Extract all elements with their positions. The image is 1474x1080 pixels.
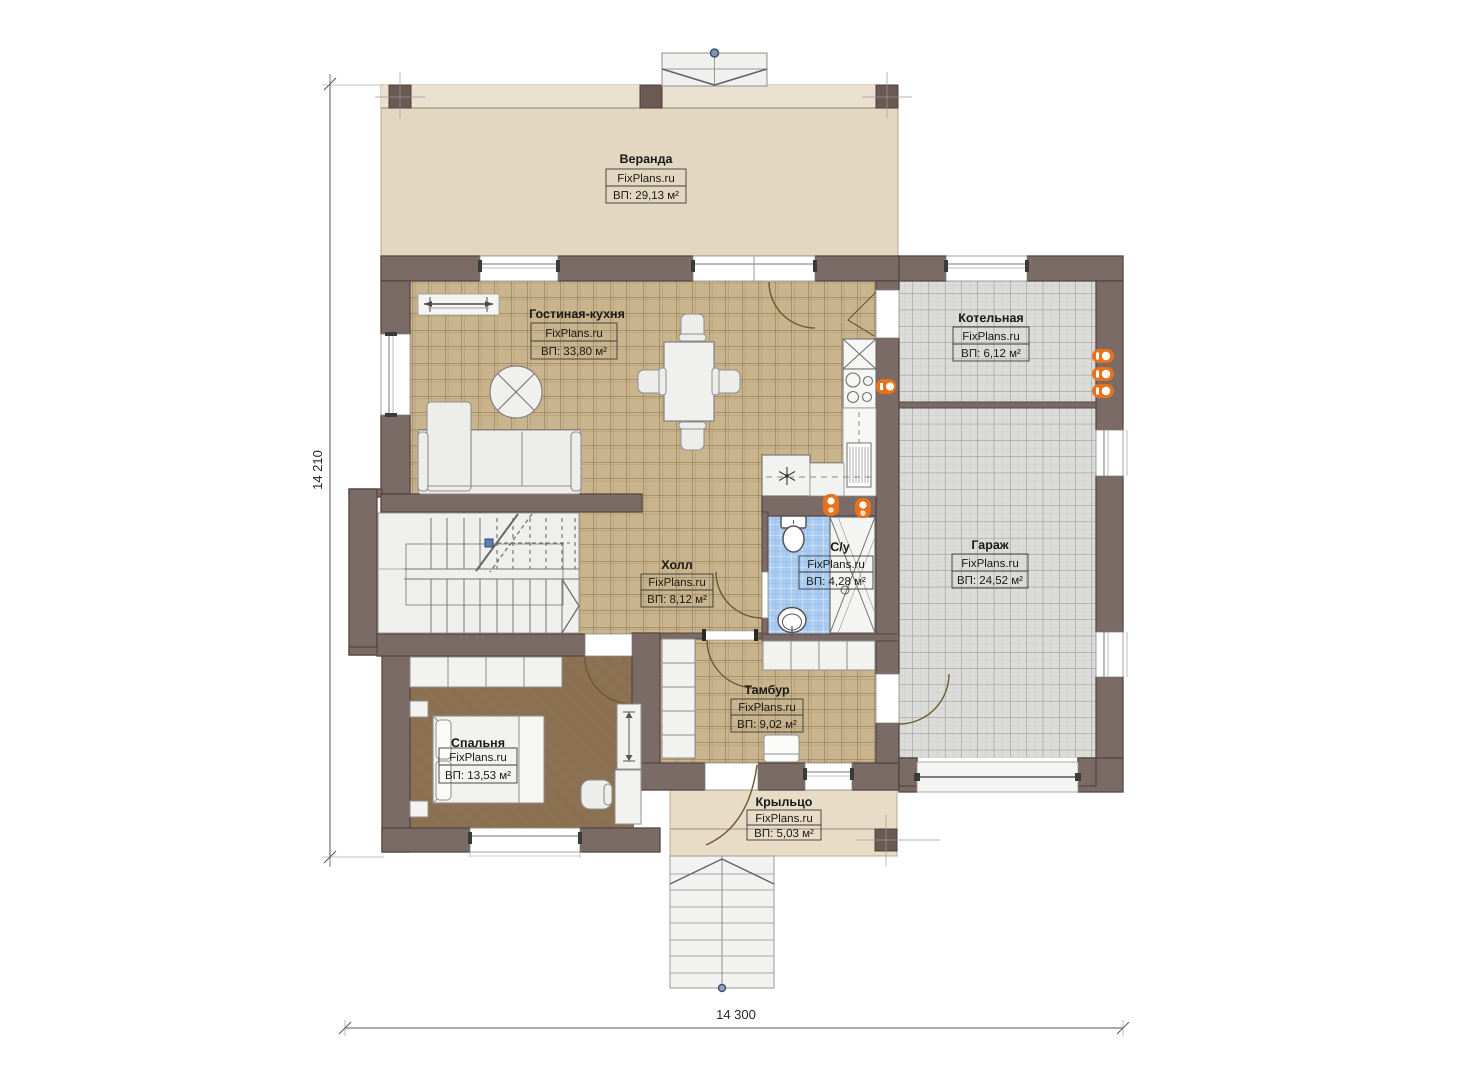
svg-text:Веранда: Веранда	[619, 152, 673, 166]
svg-text:FixPlans.ru: FixPlans.ru	[738, 702, 796, 714]
svg-text:ВП: 13,53 м²: ВП: 13,53 м²	[445, 770, 511, 782]
svg-text:Тамбур: Тамбур	[744, 683, 790, 697]
svg-text:FixPlans.ru: FixPlans.ru	[449, 752, 507, 764]
svg-text:ВП: 29,13 м²: ВП: 29,13 м²	[613, 190, 679, 202]
svg-text:14 300: 14 300	[716, 1007, 756, 1022]
svg-text:FixPlans.ru: FixPlans.ru	[755, 813, 813, 825]
svg-text:FixPlans.ru: FixPlans.ru	[545, 328, 603, 340]
svg-text:FixPlans.ru: FixPlans.ru	[962, 331, 1020, 343]
svg-text:ВП: 8,12 м²: ВП: 8,12 м²	[647, 594, 707, 606]
svg-text:ВП: 4,28 м²: ВП: 4,28 м²	[806, 576, 866, 588]
svg-text:Крыльцо: Крыльцо	[756, 795, 813, 809]
svg-text:С/у: С/у	[830, 540, 850, 554]
svg-text:Гараж: Гараж	[971, 538, 1008, 552]
svg-text:ВП: 5,03 м²: ВП: 5,03 м²	[754, 828, 814, 840]
svg-text:Котельная: Котельная	[958, 311, 1023, 325]
svg-text:ВП: 9,02 м²: ВП: 9,02 м²	[737, 719, 797, 731]
svg-text:Холл: Холл	[661, 558, 692, 572]
svg-text:ВП: 6,12 м²: ВП: 6,12 м²	[961, 348, 1021, 360]
svg-text:ВП: 33,80 м²: ВП: 33,80 м²	[541, 346, 607, 358]
svg-text:14 210: 14 210	[310, 450, 325, 490]
svg-text:FixPlans.ru: FixPlans.ru	[807, 559, 865, 571]
svg-text:FixPlans.ru: FixPlans.ru	[961, 558, 1019, 570]
svg-text:Гостиная-кухня: Гостиная-кухня	[529, 307, 625, 321]
svg-text:FixPlans.ru: FixPlans.ru	[617, 173, 675, 185]
svg-text:ВП: 24,52 м²: ВП: 24,52 м²	[957, 575, 1023, 587]
svg-text:FixPlans.ru: FixPlans.ru	[648, 577, 706, 589]
